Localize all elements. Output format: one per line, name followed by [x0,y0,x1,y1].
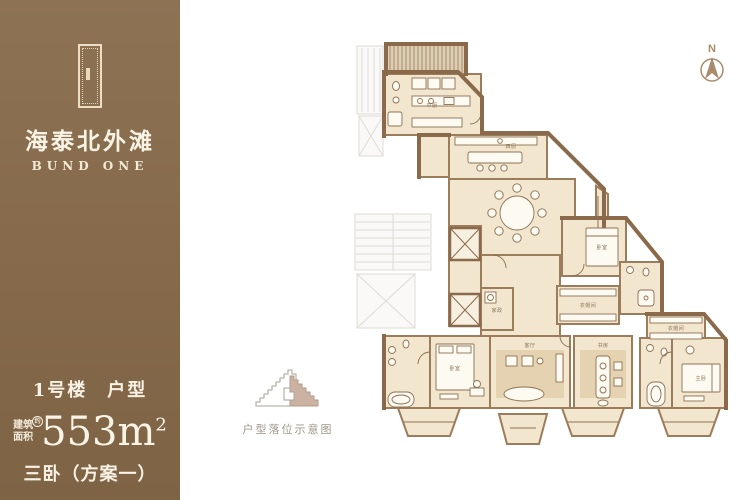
room-label-bedroom2: 卧室 [596,244,607,251]
area-label: 约 建筑 面积 [13,420,33,445]
bay-window-2 [499,414,547,444]
room-label-living: 客厅 [524,342,535,349]
unit-info-block: 1号楼 户型 约 建筑 面积 553m2 三卧（方案一） [10,376,170,486]
north-compass-icon: N [701,43,723,81]
keyplan-block: 户型落位示意图 [224,360,352,437]
keyplan-icon [250,360,326,410]
room-label-master: 主卧 [695,375,706,382]
area-value: 553m2 [41,412,167,452]
ornament-frame-icon [78,44,102,108]
room-label-closet-mid: 衣帽间 [580,302,597,309]
room-label-closet-right: 衣帽间 [668,325,685,332]
room-label-kitchen-west: 西厨 [505,144,516,150]
area-exponent: 2 [155,415,166,436]
pantry-room [419,135,449,177]
room-label-housework: 家政 [491,307,502,314]
area-row: 约 建筑 面积 553m2 [10,412,170,452]
brand-name-en: BUND ONE [10,159,170,173]
room-label-study: 书房 [597,342,608,349]
floorplan-poster: 中厨 西厨 家政 卧室 衣帽间 衣帽间 主卧 卧室 客厅 书房 N 海泰北外滩 … [0,0,750,500]
room-label-bedroom3: 卧室 [449,365,460,372]
compass-n-label: N [708,43,716,55]
area-note-circle: 约 [32,416,43,427]
dining-table [500,196,534,230]
sofa [504,387,544,401]
keyplan-caption: 户型落位示意图 [224,421,352,437]
room-label-kitchen-cn: 中厨 [426,102,437,109]
brand-panel: 海泰北外滩 BUND ONE 1号楼 户型 约 建筑 面积 553m2 三卧（方… [0,0,180,500]
terrace [386,44,466,74]
brand-name-cn: 海泰北外滩 [10,122,170,156]
area-label-top: 建筑 [13,420,33,433]
scheme-label: 三卧（方案一） [10,460,170,486]
area-number: 553m [41,409,155,455]
unit-title: 1号楼 户型 [10,376,170,402]
area-label-bottom: 面积 [13,432,33,445]
